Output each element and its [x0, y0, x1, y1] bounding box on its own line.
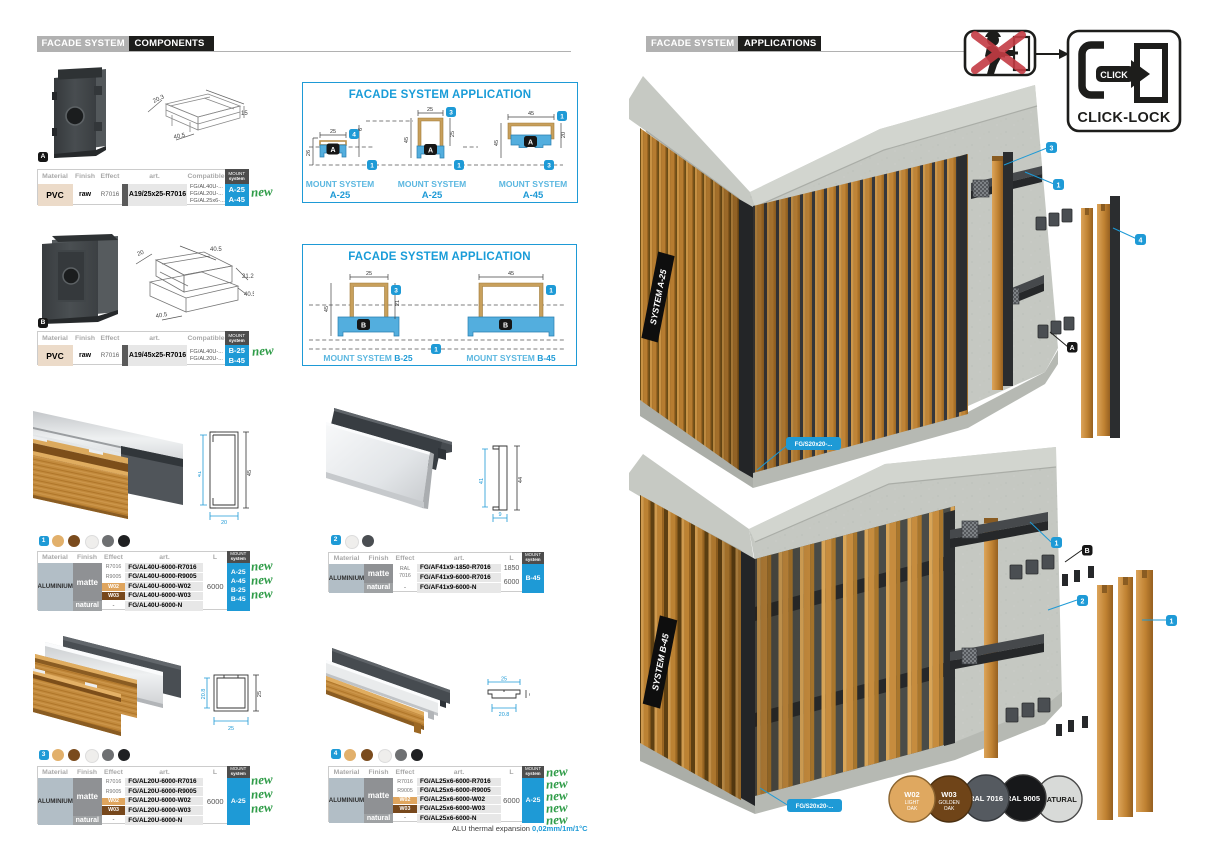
svg-text:15.1: 15.1 [241, 111, 248, 117]
svg-text:9: 9 [498, 512, 501, 518]
svg-text:25: 25 [501, 677, 507, 683]
svg-text:4: 4 [1139, 237, 1143, 244]
svg-text:FG/S20x20-...: FG/S20x20-... [795, 442, 833, 448]
svg-text:1: 1 [370, 163, 374, 170]
svg-text:45: 45 [494, 140, 500, 146]
svg-text:25: 25 [330, 129, 336, 135]
svg-text:A-25: A-25 [422, 190, 443, 201]
svg-text:20: 20 [137, 250, 146, 258]
svg-text:4: 4 [352, 132, 356, 139]
svg-text:20.8: 20.8 [499, 712, 510, 718]
svg-text:B: B [503, 323, 508, 330]
svg-text:MOUNT SYSTEM: MOUNT SYSTEM [398, 179, 466, 189]
svg-text:MOUNT SYSTEM B-45: MOUNT SYSTEM B-45 [466, 353, 556, 363]
svg-text:1: 1 [1055, 540, 1059, 547]
svg-text:45: 45 [324, 306, 330, 312]
svg-text:3: 3 [394, 288, 398, 295]
svg-text:21.2: 21.2 [242, 274, 254, 280]
svg-text:45: 45 [404, 137, 410, 143]
svg-text:A: A [528, 140, 533, 147]
svg-text:FG/S20x20-...: FG/S20x20-... [796, 804, 834, 810]
svg-text:20.3: 20.3 [152, 94, 166, 105]
svg-text:3: 3 [449, 110, 453, 117]
svg-text:6: 6 [358, 128, 364, 131]
svg-text:41: 41 [198, 471, 203, 477]
svg-text:A: A [428, 148, 433, 155]
svg-text:1: 1 [1057, 182, 1061, 189]
svg-text:26: 26 [306, 150, 312, 156]
svg-text:40.5: 40.5 [173, 133, 186, 141]
svg-text:W03: W03 [941, 790, 956, 799]
svg-text:A: A [330, 147, 335, 154]
svg-text:1: 1 [434, 347, 438, 354]
svg-text:2: 2 [1081, 598, 1085, 605]
svg-text:45: 45 [247, 470, 253, 476]
svg-text:41: 41 [479, 478, 485, 484]
svg-text:W02: W02 [904, 790, 919, 799]
svg-text:1: 1 [1170, 618, 1174, 625]
svg-text:3: 3 [547, 163, 551, 170]
svg-text:1: 1 [457, 163, 461, 170]
svg-text:B: B [361, 323, 366, 330]
svg-text:20: 20 [221, 520, 227, 526]
svg-text:25: 25 [228, 726, 234, 732]
svg-text:B: B [1085, 548, 1090, 555]
svg-text:OAK: OAK [944, 806, 955, 812]
svg-text:1: 1 [549, 288, 553, 295]
svg-text:1: 1 [560, 114, 564, 121]
svg-text:MOUNT SYSTEM: MOUNT SYSTEM [499, 179, 567, 189]
svg-text:A-45: A-45 [523, 190, 544, 201]
svg-text:MOUNT SYSTEM: MOUNT SYSTEM [306, 179, 374, 189]
svg-text:RAL 9005: RAL 9005 [1006, 794, 1040, 803]
svg-text:A: A [1070, 345, 1075, 352]
svg-text:45: 45 [508, 271, 514, 277]
svg-text:25: 25 [450, 131, 456, 137]
svg-text:25: 25 [366, 271, 372, 277]
svg-text:MOUNT SYSTEM B-25: MOUNT SYSTEM B-25 [323, 353, 413, 363]
svg-text:20.8: 20.8 [201, 689, 207, 700]
svg-text:44: 44 [518, 477, 524, 483]
svg-text:21: 21 [395, 300, 401, 306]
svg-text:40.5: 40.5 [210, 247, 222, 253]
svg-text:6: 6 [529, 692, 530, 697]
svg-text:25: 25 [427, 107, 433, 113]
svg-text:40.5: 40.5 [244, 292, 254, 298]
svg-text:RAL 7016: RAL 7016 [969, 794, 1003, 803]
svg-text:A-25: A-25 [330, 190, 351, 201]
svg-text:25: 25 [257, 691, 262, 697]
svg-text:OAK: OAK [907, 806, 918, 812]
svg-text:45: 45 [528, 111, 534, 117]
svg-text:20: 20 [561, 132, 567, 138]
svg-text:3: 3 [1050, 145, 1054, 152]
